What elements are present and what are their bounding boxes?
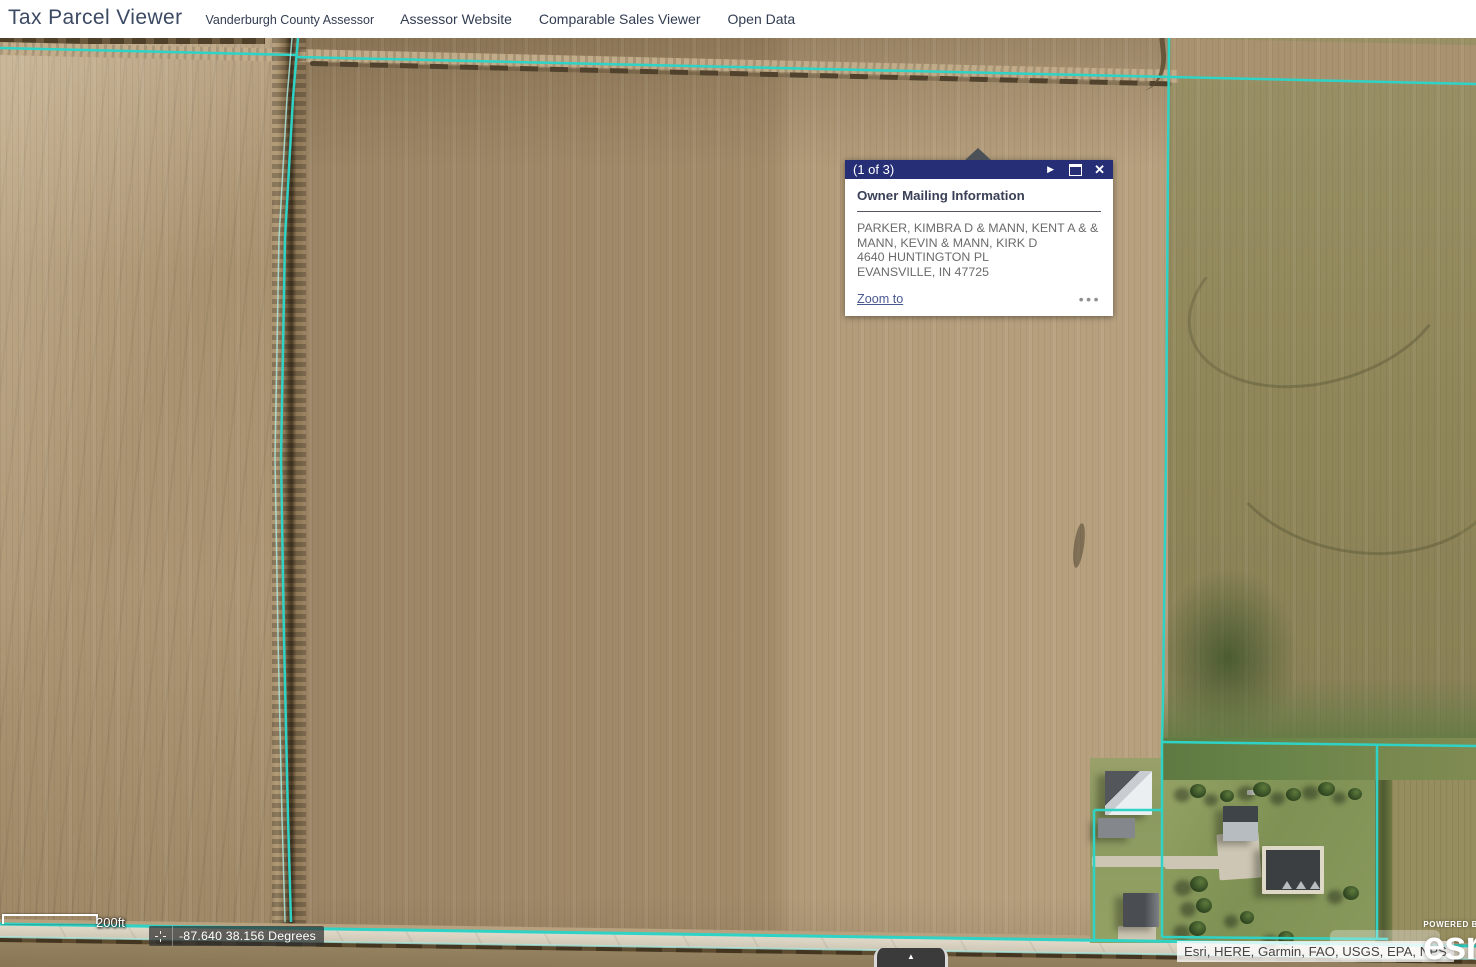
tree xyxy=(1253,782,1271,797)
driveway xyxy=(1118,926,1156,942)
popup-pager: (1 of 3) xyxy=(853,162,1047,177)
tree xyxy=(1240,911,1254,924)
tree xyxy=(1318,782,1335,796)
popup-body: Owner Mailing Information PARKER, KIMBRA… xyxy=(845,179,1113,279)
driveway xyxy=(1165,856,1220,869)
nav-link-assessor-website[interactable]: Assessor Website xyxy=(400,11,512,27)
owner-line: 4640 HUNTINGTON PL xyxy=(857,250,1101,265)
field-right-top xyxy=(1167,38,1476,85)
ditch-vertical xyxy=(272,38,306,926)
next-feature-icon[interactable]: ▶ xyxy=(1047,164,1054,175)
locate-button[interactable] xyxy=(149,926,173,946)
nav-link-comparable-sales[interactable]: Comparable Sales Viewer xyxy=(539,11,701,27)
map-attribution: Esri, HERE, Garmin, FAO, USGS, EPA, NPS xyxy=(1177,941,1454,962)
scale-label: 200ft xyxy=(96,915,125,930)
field-left xyxy=(0,38,283,967)
lawn-band xyxy=(1162,738,1476,780)
tree xyxy=(1286,788,1301,801)
more-options-icon[interactable]: ••• xyxy=(1079,295,1101,303)
green-band xyxy=(1162,678,1476,738)
popup-anchor-arrow xyxy=(965,148,991,160)
coordinates-value: -87.640 38.156 Degrees xyxy=(173,929,324,943)
app-title: Tax Parcel Viewer xyxy=(8,0,182,36)
house xyxy=(1105,771,1152,815)
zoom-to-link[interactable]: Zoom to xyxy=(857,292,1079,306)
house xyxy=(1223,806,1258,841)
tree xyxy=(1190,784,1206,798)
coordinates-widget: -87.640 38.156 Degrees xyxy=(149,926,324,946)
map-canvas[interactable]: 200ft -87.640 38.156 Degrees ▲ Esri, HER… xyxy=(0,38,1476,967)
tree xyxy=(1189,921,1206,936)
feature-popup: (1 of 3) ▶ ✕ Owner Mailing Information P… xyxy=(845,160,1113,316)
house xyxy=(1123,893,1159,927)
popup-title: Owner Mailing Information xyxy=(857,188,1101,203)
dormer xyxy=(1282,881,1292,889)
tree xyxy=(1196,898,1212,913)
owner-line: PARKER, KIMBRA D & MANN, KENT A & & xyxy=(857,221,1101,236)
chevron-up-icon: ▲ xyxy=(907,952,915,961)
nav-links: Assessor Website Comparable Sales Viewer… xyxy=(400,11,795,27)
field-strip xyxy=(1392,780,1476,943)
nav-link-open-data[interactable]: Open Data xyxy=(728,11,796,27)
tree xyxy=(1220,790,1234,802)
owner-line: MANN, KEVIN & MANN, KIRK D xyxy=(857,236,1101,251)
app-subtitle: Vanderburgh County Assessor xyxy=(205,13,374,27)
popup-footer: Zoom to ••• xyxy=(845,279,1113,316)
hedge-strip xyxy=(1375,780,1392,943)
tree xyxy=(1348,788,1362,800)
crosshair-icon xyxy=(155,931,166,942)
popup-divider xyxy=(857,211,1101,212)
esri-logo: POWERED BY esri xyxy=(1423,920,1476,963)
residential-area xyxy=(1090,738,1476,943)
owner-line: EVANSVILLE, IN 47725 xyxy=(857,265,1101,280)
outbuilding xyxy=(1098,818,1135,838)
popup-header: (1 of 3) ▶ ✕ xyxy=(845,160,1113,179)
maximize-icon[interactable] xyxy=(1069,164,1082,176)
app-header: Tax Parcel Viewer Vanderburgh County Ass… xyxy=(0,0,1476,38)
dormer xyxy=(1296,881,1306,889)
house xyxy=(1262,846,1324,894)
attribute-table-tab[interactable]: ▲ xyxy=(874,948,948,967)
tree xyxy=(1343,886,1359,900)
close-icon[interactable]: ✕ xyxy=(1094,162,1105,178)
scale-bar xyxy=(2,914,98,924)
tree xyxy=(1190,876,1208,892)
driveway xyxy=(1092,856,1167,867)
esri-logo-text: esri xyxy=(1423,929,1476,963)
dormer xyxy=(1310,881,1320,889)
